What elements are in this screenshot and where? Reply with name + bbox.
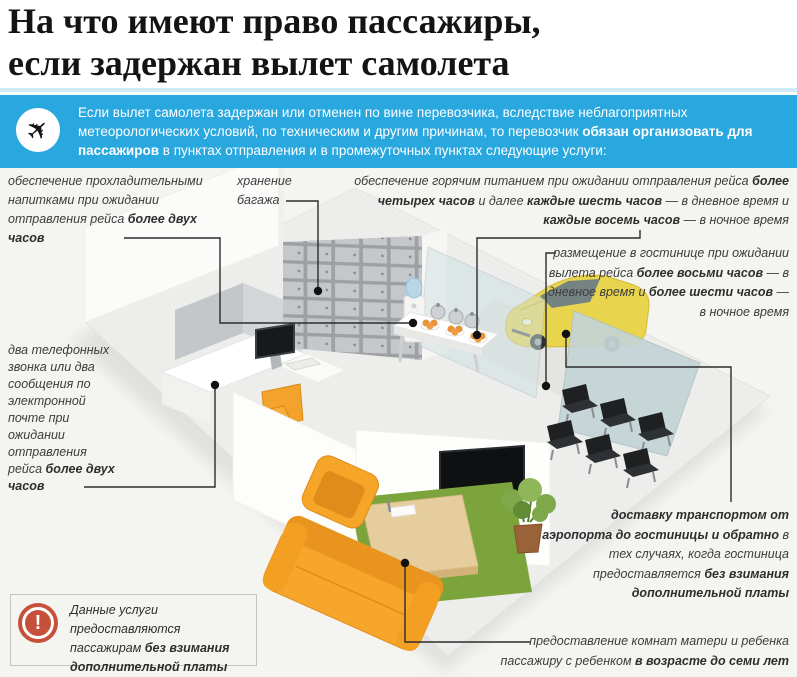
page-title-line2: если задержан вылет самолета [8,42,541,84]
callout-hot-meals: обеспечение горячим питанием при ожидани… [334,172,789,231]
airplane-icon: ✈ [16,108,60,152]
infographic-page: На что имеют право пассажиры, если задер… [0,0,797,677]
title-divider [0,88,797,92]
warning-exclamation-icon: ! [22,607,54,639]
callout-dot-phone [211,381,219,389]
page-title: На что имеют право пассажиры, если задер… [8,0,541,84]
callout-dot-mother-child [401,559,409,567]
info-banner: ✈ Если вылет самолета задержан или отмен… [0,95,797,168]
callout-dot-hotel [542,382,550,390]
banner-text: Если вылет самолета задержан или отменен… [78,103,783,160]
callout-transport: доставку транспортом от аэропорта до гос… [539,506,789,604]
callout-phone: два телефонных звонка или два сообщения … [8,342,120,495]
callout-mother-child: предоставление комнат матери и ребенка п… [469,632,789,671]
callout-dot-refreshments [409,319,417,327]
callout-dot-hot-meals [473,331,481,339]
callout-baggage: хранение багажа [237,172,317,210]
callout-dot-baggage [314,287,322,295]
note-text: Данные услуги предоставляются пассажирам… [70,601,250,677]
callout-refreshments: обеспечение прохладительными напитками п… [8,172,204,248]
callout-dot-transport [562,330,570,338]
callout-hotel: размещение в гостинице при ожидании выле… [539,244,789,322]
page-title-line1: На что имеют право пассажиры, [8,0,541,42]
